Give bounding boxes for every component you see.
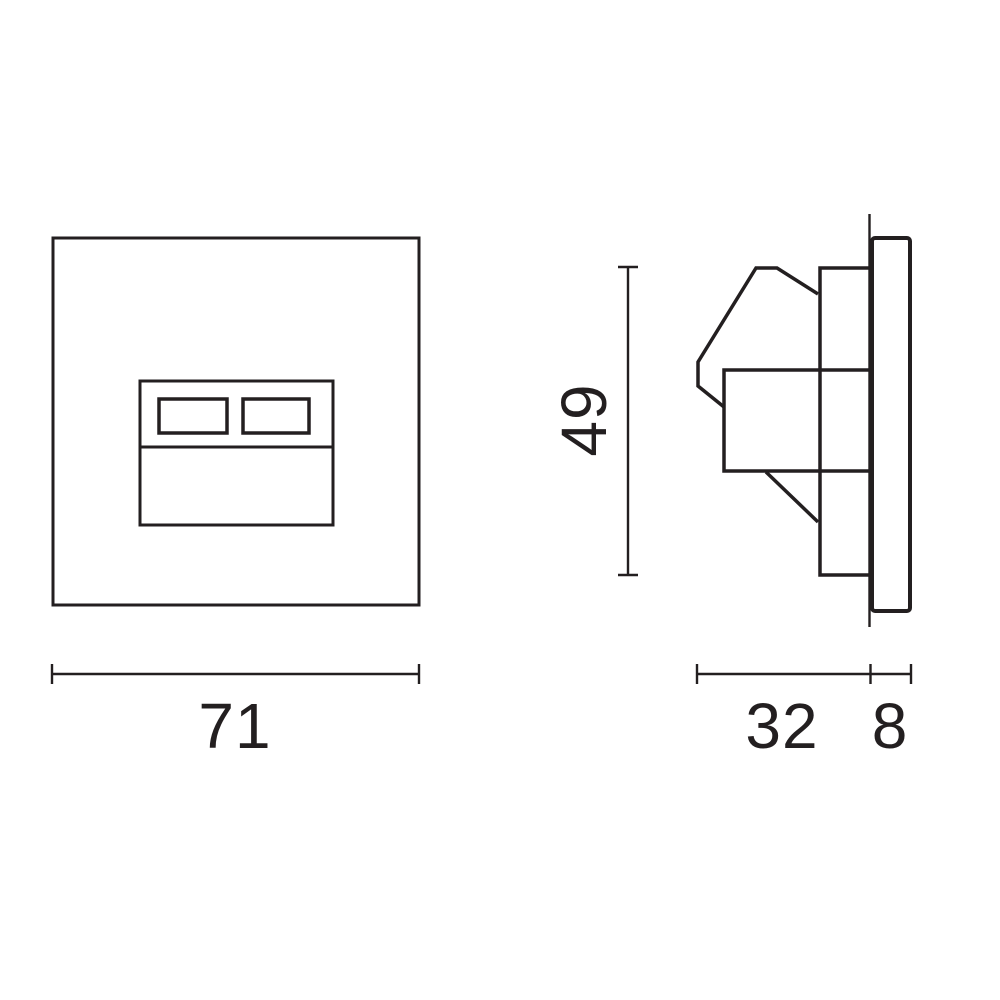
dim-label-71: 71: [198, 690, 271, 762]
side-mounting-bracket: [698, 268, 818, 407]
dim-label-49: 49: [548, 383, 620, 456]
front-view: [53, 238, 419, 605]
front-module-plate: [140, 381, 333, 525]
front-window-left: [159, 399, 227, 433]
dimension-front-width: 71: [52, 664, 419, 762]
dimension-drawing: 71 49 32 8: [0, 0, 1000, 1000]
dim-label-8: 8: [872, 690, 909, 762]
front-faceplate-outline: [53, 238, 419, 605]
dim-label-32: 32: [745, 690, 818, 762]
dimension-depth-group: 32 8: [697, 664, 911, 762]
drawing-canvas: 71 49 32 8: [0, 0, 1000, 1000]
side-faceplate: [872, 238, 910, 611]
side-lower-strut: [766, 472, 818, 522]
side-view: [698, 214, 910, 627]
side-recessed-housing: [820, 268, 869, 575]
dimension-side-height: 49: [548, 267, 638, 575]
side-lamp-box: [724, 370, 869, 471]
front-window-right: [243, 399, 309, 433]
